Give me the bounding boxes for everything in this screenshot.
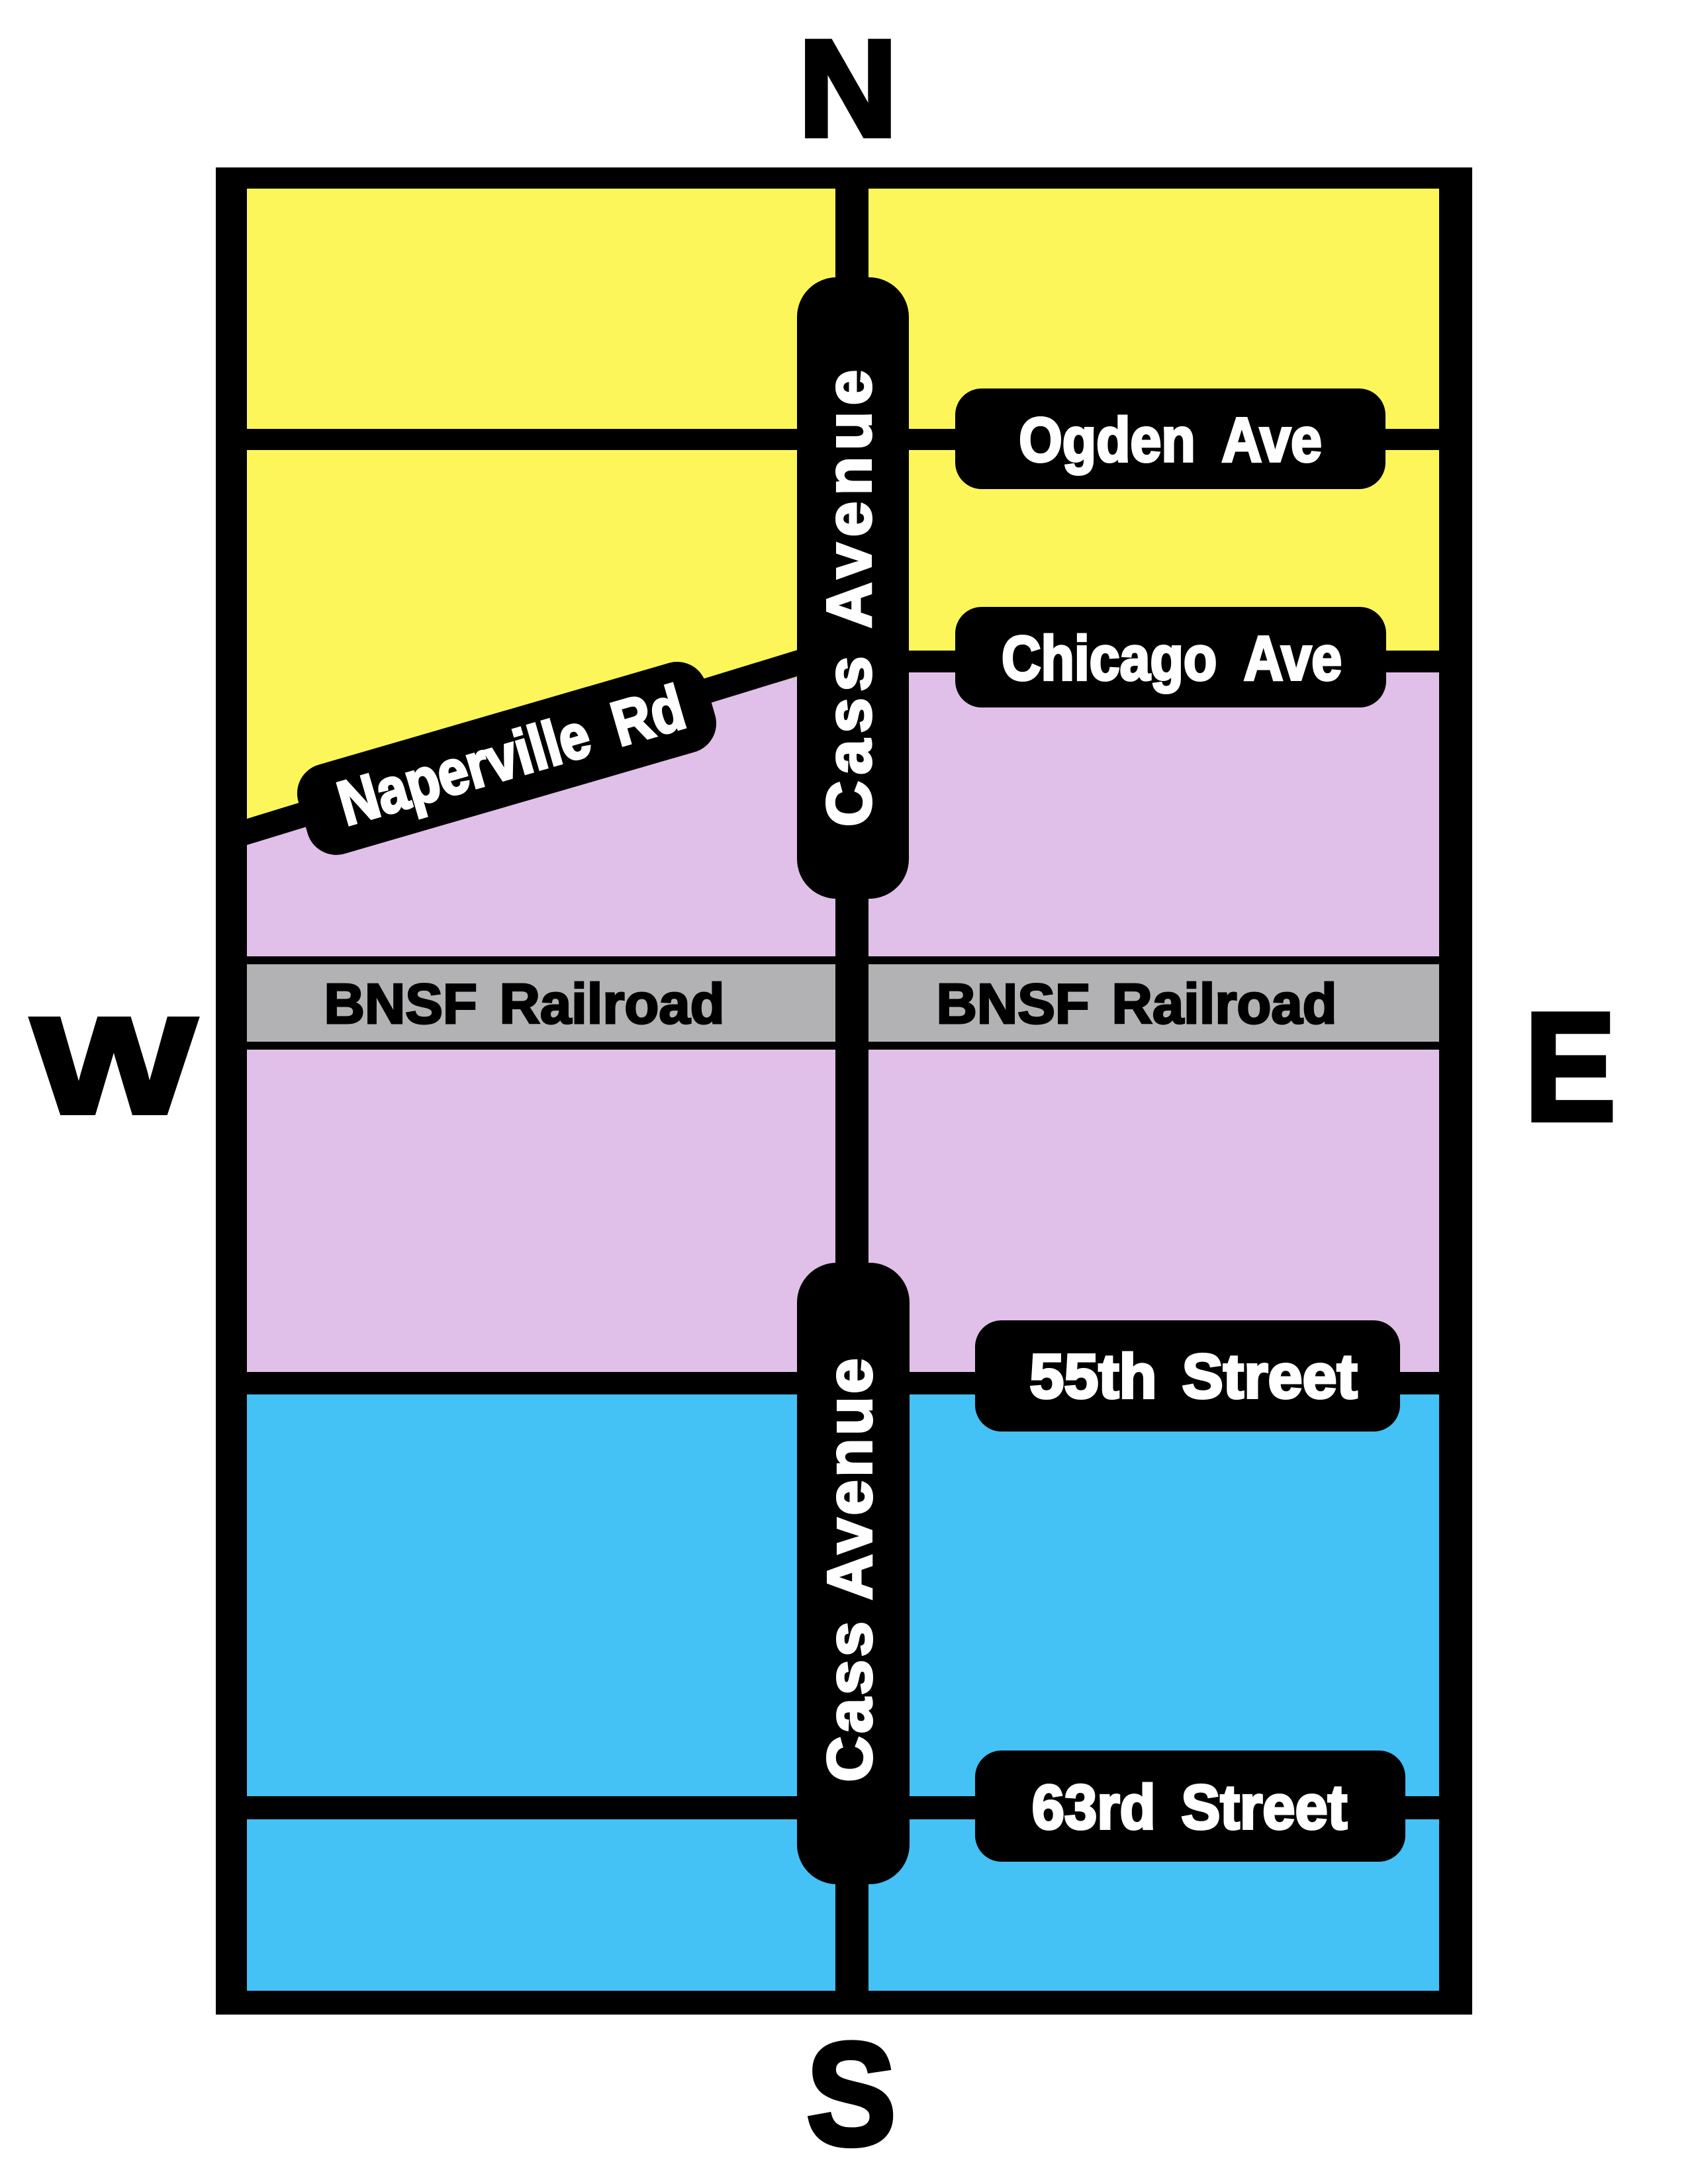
svg-text:Ogden Ave: Ogden Ave <box>1019 405 1322 475</box>
svg-text:BNSF Railroad: BNSF Railroad <box>324 973 724 1036</box>
svg-text:W: W <box>32 989 196 1141</box>
svg-text:55th Street: 55th Street <box>1029 1341 1357 1411</box>
svg-text:63rd Street: 63rd Street <box>1032 1772 1347 1843</box>
svg-text:E: E <box>1524 981 1616 1153</box>
svg-text:Chicago Ave: Chicago Ave <box>1002 622 1342 693</box>
svg-text:Cass Avenue: Cass Avenue <box>815 1355 885 1782</box>
svg-text:Cass Avenue: Cass Avenue <box>814 363 884 827</box>
svg-text:BNSF Railroad: BNSF Railroad <box>936 973 1336 1036</box>
svg-text:N: N <box>798 12 898 165</box>
svg-text:S: S <box>806 2013 896 2175</box>
